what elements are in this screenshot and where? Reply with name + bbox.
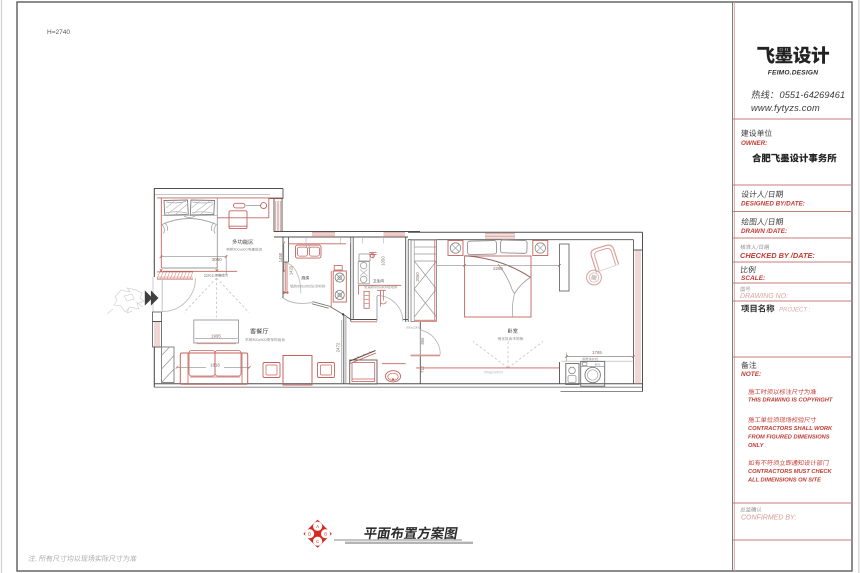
svg-text:PROJECT :: PROJECT : bbox=[779, 308, 811, 314]
svg-text:OWNER:: OWNER: bbox=[741, 140, 767, 147]
svg-text:8KG: 8KG bbox=[595, 363, 601, 367]
svg-text:DRAWING NO:: DRAWING NO: bbox=[740, 293, 788, 300]
svg-text:D: D bbox=[308, 532, 311, 537]
svg-text:C: C bbox=[316, 539, 319, 544]
svg-text:1765: 1765 bbox=[592, 350, 602, 355]
svg-text:H=2740: H=2740 bbox=[47, 29, 70, 36]
svg-text:NOTE:: NOTE: bbox=[741, 371, 761, 378]
svg-text:2060: 2060 bbox=[415, 272, 420, 282]
svg-text:1450: 1450 bbox=[278, 252, 283, 262]
svg-text:855: 855 bbox=[420, 337, 425, 345]
svg-text:FEIMO.DESIGN: FEIMO.DESIGN bbox=[768, 69, 818, 76]
svg-text:ALL DIMENSIONS ON SITE: ALL DIMENSIONS ON SITE bbox=[747, 478, 821, 484]
svg-text:DRAWN /DATE:: DRAWN /DATE: bbox=[741, 228, 787, 235]
svg-text:1818: 1818 bbox=[210, 363, 220, 368]
svg-text:712: 712 bbox=[420, 365, 425, 373]
svg-text:A: A bbox=[316, 524, 319, 529]
svg-text:ONLY: ONLY bbox=[748, 443, 765, 449]
svg-text:CHECKED BY /DATE:: CHECKED BY /DATE: bbox=[740, 251, 815, 260]
svg-text:FROM FIGURED DIMENSIONS: FROM FIGURED DIMENSIONS bbox=[748, 435, 830, 441]
svg-text:CONTRACTORS MUST CHECK: CONTRACTORS MUST CHECK bbox=[748, 469, 833, 475]
svg-text:B: B bbox=[324, 532, 327, 537]
svg-text:1995: 1995 bbox=[211, 333, 221, 338]
svg-text:THIS DRAWING IS COPYRIGHT: THIS DRAWING IS COPYRIGHT bbox=[748, 398, 833, 404]
svg-text:CONFIRMED BY:: CONFIRMED BY: bbox=[741, 515, 796, 522]
svg-text:1420: 1420 bbox=[288, 265, 293, 275]
svg-text:2260: 2260 bbox=[493, 266, 503, 271]
svg-text:DESIGNED BY/DATE:: DESIGNED BY/DATE: bbox=[741, 201, 805, 208]
svg-text:www.fytyzs.com: www.fytyzs.com bbox=[751, 103, 820, 113]
svg-text:1050: 1050 bbox=[381, 256, 386, 266]
svg-text:SCALE:: SCALE: bbox=[741, 275, 765, 282]
svg-text:CONTRACTORS SHALL WORK: CONTRACTORS SHALL WORK bbox=[748, 426, 833, 432]
svg-text:3050: 3050 bbox=[212, 257, 223, 262]
svg-text:2472: 2472 bbox=[336, 342, 341, 352]
svg-text:0551-64269461: 0551-64269461 bbox=[780, 90, 846, 100]
